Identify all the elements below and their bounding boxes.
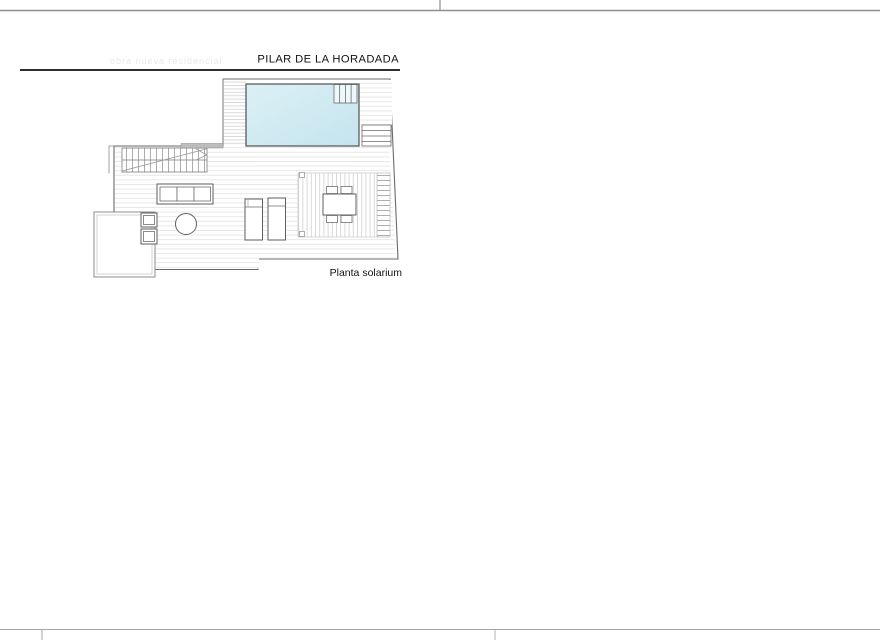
svg-text:obra nueva residencial: obra nueva residencial xyxy=(110,56,223,66)
svg-text:Planta solarium: Planta solarium xyxy=(330,267,403,279)
svg-text:PILAR DE LA HORADADA: PILAR DE LA HORADADA xyxy=(257,54,399,66)
